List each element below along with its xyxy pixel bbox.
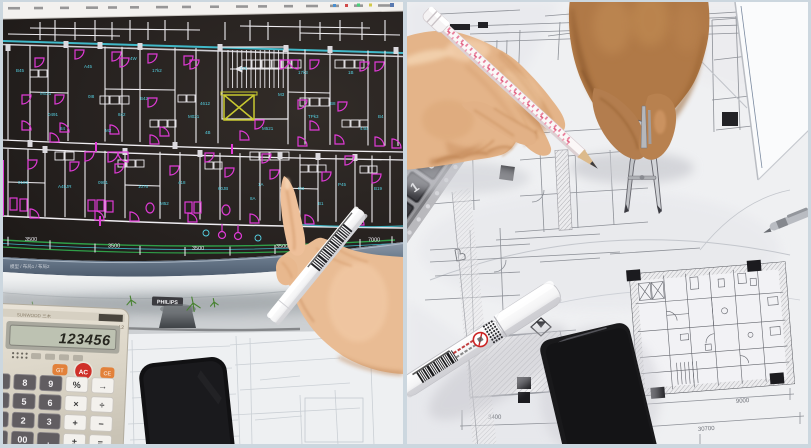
svg-text:÷: ÷ [99, 400, 104, 410]
svg-text:M021: M021 [188, 114, 200, 119]
svg-text:4B: 4B [205, 130, 211, 135]
svg-text:3500: 3500 [25, 237, 37, 243]
svg-text:44B: 44B [360, 126, 368, 131]
svg-text:%: % [73, 380, 81, 390]
svg-text:GT: GT [56, 368, 65, 374]
svg-text:123456: 123456 [58, 331, 111, 349]
svg-text:1076: 1076 [138, 184, 149, 189]
svg-text:00: 00 [17, 434, 27, 444]
svg-text:3500: 3500 [192, 246, 204, 252]
svg-text:B42: B42 [140, 96, 149, 101]
svg-text:1B: 1B [348, 70, 354, 75]
svg-text:模型 / 布局1 / 布局2: 模型 / 布局1 / 布局2 [10, 263, 50, 270]
svg-text:+: + [72, 418, 78, 428]
svg-text:M3: M3 [278, 92, 285, 97]
svg-text:4W: 4W [130, 56, 138, 61]
svg-text:0491: 0491 [48, 112, 59, 117]
svg-text:0901: 0901 [98, 180, 109, 185]
svg-text:3500: 3500 [276, 244, 288, 250]
svg-text:M2: M2 [105, 128, 112, 133]
svg-text:84: 84 [60, 126, 66, 131]
svg-text:17k2: 17k2 [152, 68, 162, 73]
svg-text:3: 3 [46, 417, 51, 427]
svg-text:30700: 30700 [698, 426, 716, 433]
svg-text:A45: A45 [84, 64, 93, 69]
svg-text:4612: 4612 [200, 101, 211, 106]
svg-text:5: 5 [21, 397, 26, 407]
svg-text:M3: M3 [298, 186, 305, 191]
svg-text:17k: 17k [240, 66, 248, 71]
svg-text:0I8: 0I8 [88, 94, 95, 99]
svg-text:CE: CE [103, 371, 111, 377]
svg-text:9: 9 [48, 379, 53, 389]
svg-text:842: 842 [118, 112, 126, 117]
svg-text:M021: M021 [40, 91, 52, 96]
svg-text:7000: 7000 [368, 237, 380, 243]
svg-text:8A: 8A [250, 196, 256, 201]
svg-text:0185: 0185 [18, 180, 29, 185]
svg-text:B4: B4 [378, 114, 384, 119]
svg-text:B19: B19 [374, 186, 383, 191]
svg-text:M521: M521 [262, 126, 274, 131]
svg-text:AC: AC [79, 369, 89, 376]
svg-text:9000: 9000 [736, 398, 750, 405]
svg-text:8: 8 [22, 378, 27, 388]
svg-text:−: − [98, 419, 104, 429]
svg-text:2: 2 [20, 416, 25, 426]
svg-text:60JB: 60JB [218, 186, 228, 191]
svg-text:17k3: 17k3 [298, 70, 308, 75]
svg-text:→: → [98, 381, 107, 391]
svg-text:B45: B45 [16, 68, 25, 73]
svg-text:418: 418 [178, 180, 186, 185]
svg-text:TPk3: TPk3 [308, 114, 319, 119]
svg-text:B8: B8 [330, 101, 336, 106]
svg-text:6: 6 [47, 398, 52, 408]
svg-text:B1: B1 [318, 201, 324, 206]
svg-text:1A: 1A [258, 182, 264, 187]
svg-text:A45JR: A45JR [58, 184, 72, 189]
svg-text:M52: M52 [160, 201, 169, 206]
svg-text:3500: 3500 [108, 243, 120, 249]
svg-text:×: × [73, 399, 79, 409]
svg-text:P45: P45 [338, 182, 347, 187]
